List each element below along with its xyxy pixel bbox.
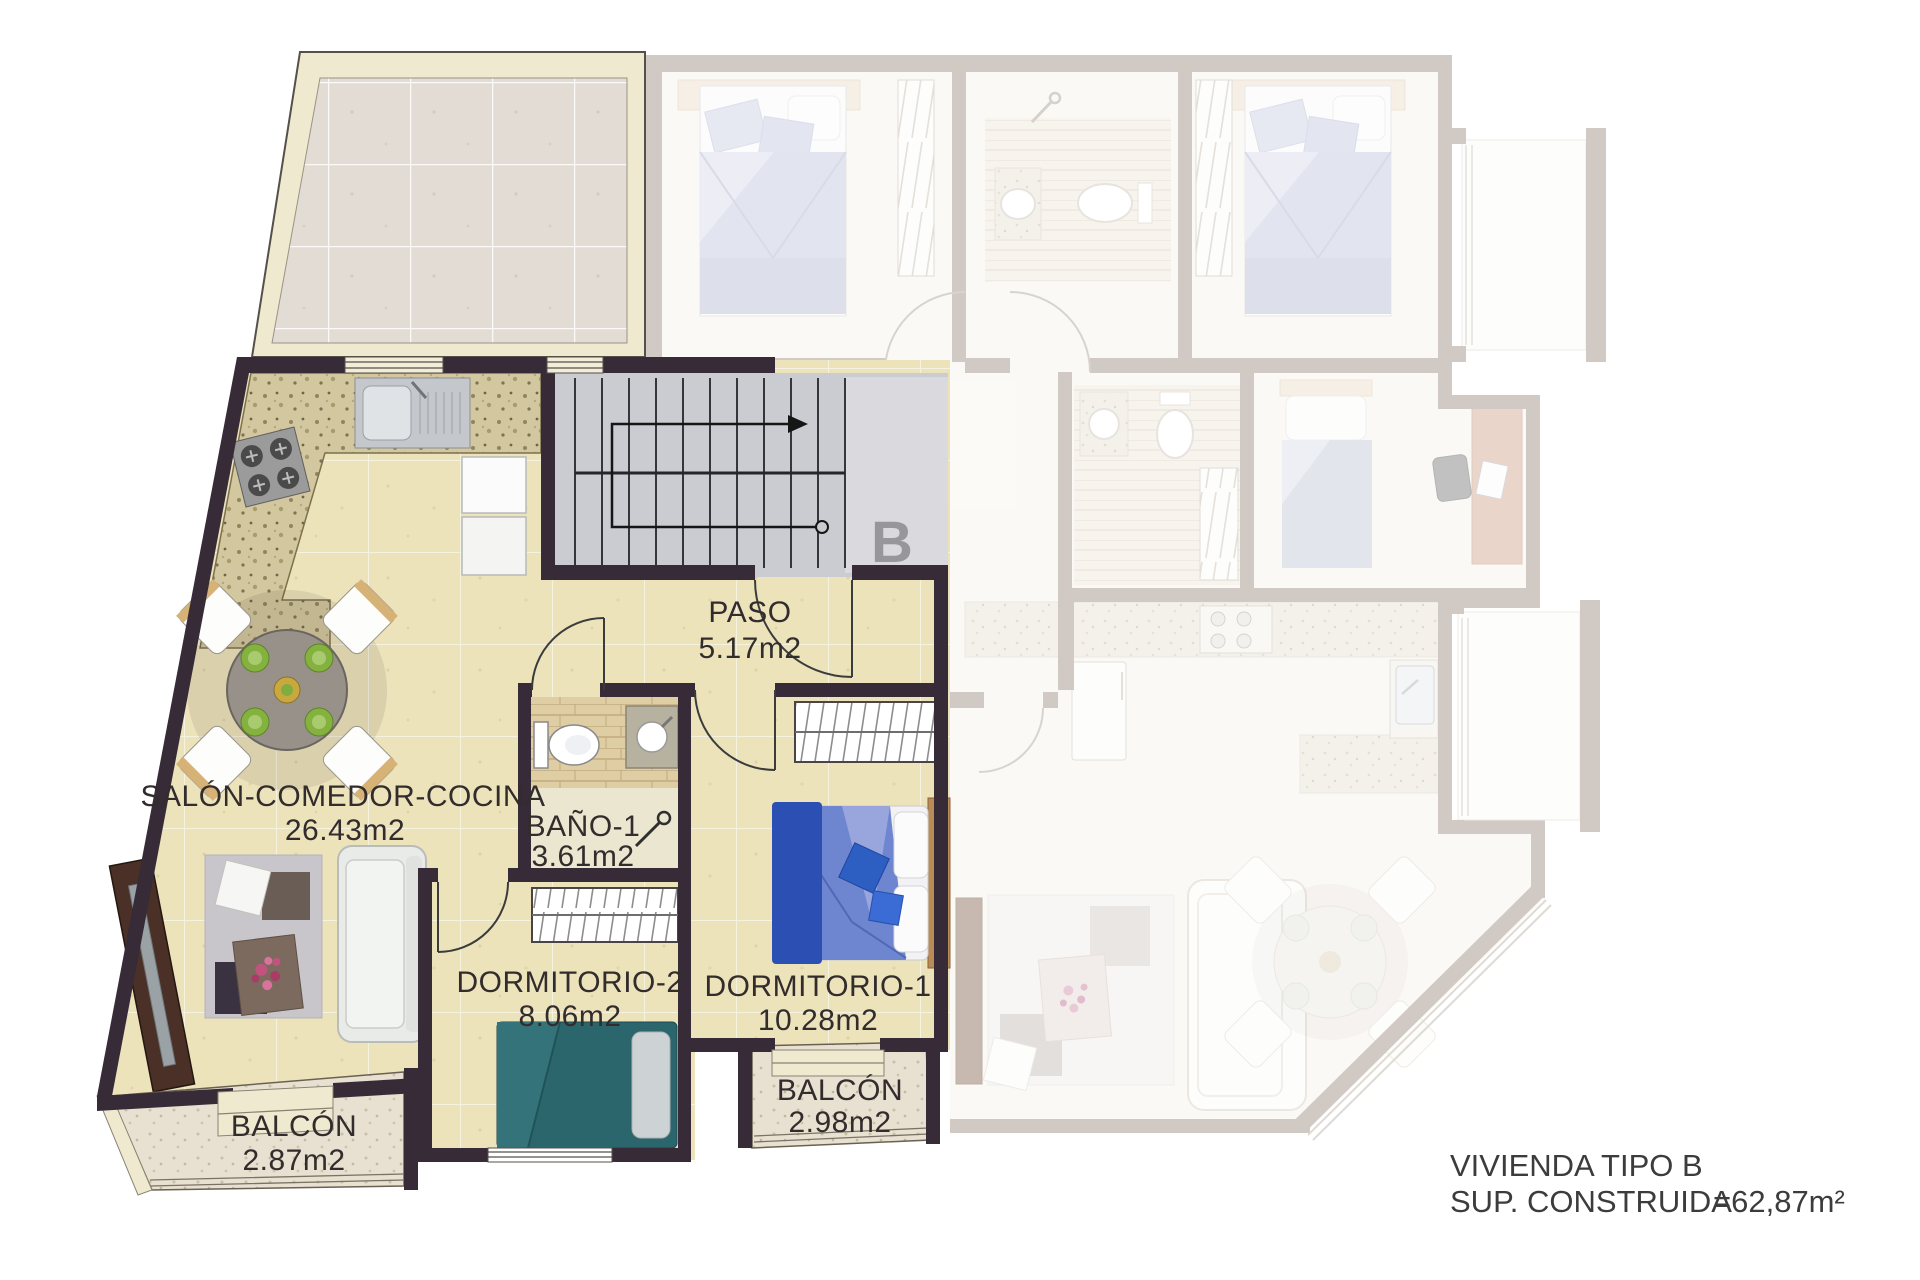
floorplan-page: B [0,0,1920,1280]
label-paso-name: PASO [708,596,791,629]
bed-dormitorio2 [497,1022,677,1148]
living-rug [205,855,322,1018]
ghost-bathroom-top [985,93,1171,282]
bed-dormitorio1 [772,798,950,968]
ghost-balcony-mid-right [1452,600,1600,834]
label-balcon-dormitorio-area: 2.98m2 [788,1106,891,1139]
terrace [252,52,645,357]
dining-set [176,579,398,801]
toilet-tank [534,722,548,768]
ghost-bedroom-double-2 [1223,80,1405,316]
kitchen-sink [355,378,470,448]
sill-balcony-dormitorio [772,1050,884,1076]
label-salon-area: 26.43m2 [285,814,405,847]
ghost-bathroom-mid [1074,385,1240,585]
stairwell: B [555,373,948,577]
label-balcon-salon-area: 2.87m2 [242,1144,345,1177]
title-line1: VIVIENDA TIPO B [1450,1148,1703,1183]
sofa [338,846,426,1042]
label-dormitorio2-name: DORMITORIO-2 [456,966,683,999]
label-bano1-name: BAÑO-1 [526,809,641,843]
ghost-bedroom-double-1 [678,80,860,316]
coffee-table [233,934,304,1015]
title-line2-label: SUP. CONSTRUIDA [1450,1184,1732,1219]
kitchen-appliance-2 [462,517,526,575]
label-dormitorio1-name: DORMITORIO-1 [704,970,931,1003]
ghost-tv-unit [956,898,982,1084]
kitchen-appliance-1 [462,457,526,513]
ghost-wardrobe-2 [1196,80,1232,276]
wardrobe-dormitorio2 [532,888,678,942]
title-line2-value: =62,87m² [1713,1184,1845,1219]
label-dormitorio1-area: 10.28m2 [758,1004,878,1037]
title-block: VIVIENDA TIPO B SUP. CONSTRUIDA =62,87m² [1450,1148,1845,1219]
label-dormitorio2-area: 8.06m2 [518,1000,621,1033]
label-balcon-dormitorio-name: BALCÓN [777,1074,903,1107]
bath-sink [626,706,678,768]
floorplan-drawing: B [0,0,1920,1280]
ghost-wardrobe-1 [898,80,934,276]
ghost-balcony-top-right [1452,128,1606,362]
label-balcon-salon-name: BALCÓN [231,1110,357,1143]
label-bano1-area: 3.61m2 [531,840,634,873]
wardrobe-dormitorio1 [795,702,935,762]
label-paso-area: 5.17m2 [698,632,801,665]
label-salon-name: SALÓN-COMEDOR-COCINA [140,780,545,813]
